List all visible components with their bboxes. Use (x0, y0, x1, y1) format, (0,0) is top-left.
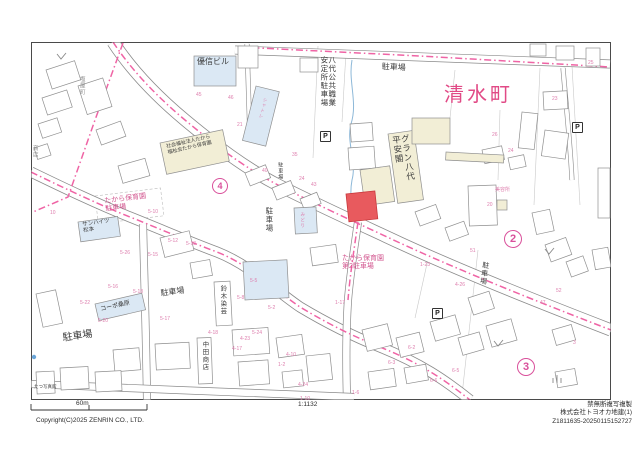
water-point-symbol (32, 355, 36, 359)
scale-ratio: 1:1132 (298, 401, 317, 408)
map-canvas (0, 0, 640, 452)
map-print-page: 清水町優信ビルシャトレ八代公共職業 安定所駐車場駐車場グラン八代 平安閣社会福祉… (0, 0, 640, 452)
copyright-notice: Copyright(C)2025 ZENRIN CO., LTD. (36, 417, 144, 424)
print-code: Z1811635-20250115152727 (552, 418, 632, 426)
scale-bar (31, 404, 147, 410)
scale-bar-label: 60m (76, 400, 89, 407)
company-line: 株式会社トヨオカ地建(1) (552, 409, 632, 417)
highlighted-parcel (346, 191, 378, 222)
print-info-block: 禁無断複写複製 株式会社トヨオカ地建(1) Z1811635-202501151… (552, 401, 632, 426)
